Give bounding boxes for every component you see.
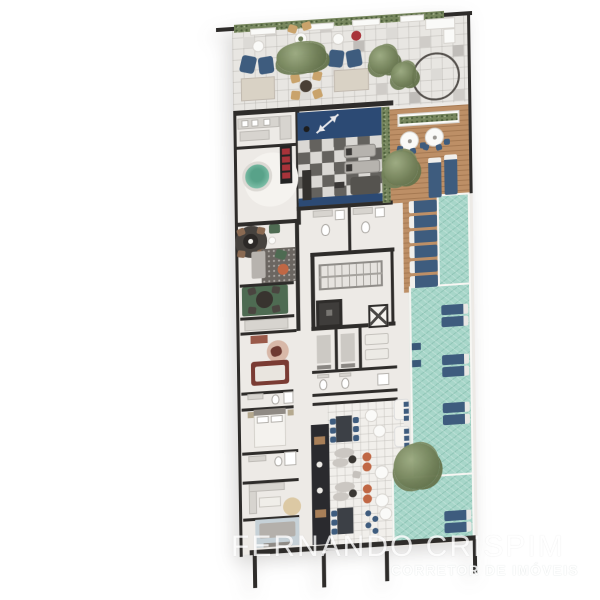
gray-sofa xyxy=(259,521,295,538)
toilet xyxy=(361,221,370,234)
toilet xyxy=(319,379,327,391)
shelf-lounger xyxy=(404,436,409,441)
pillow xyxy=(257,416,269,424)
appliance xyxy=(263,119,270,126)
lounge-chair xyxy=(331,510,337,516)
lounge-chair-blue xyxy=(327,49,345,68)
bar-board xyxy=(314,436,325,445)
dining-table xyxy=(334,68,369,92)
locker-box xyxy=(282,148,290,155)
pool-upper xyxy=(437,192,471,288)
in-pool-lounger xyxy=(444,510,471,522)
lounge-chair xyxy=(330,418,336,424)
changing-mat xyxy=(317,335,331,364)
sun-lounger xyxy=(409,230,437,244)
bar-board xyxy=(315,509,326,518)
support-sink-counter xyxy=(240,130,270,142)
lounge-table-dark xyxy=(337,507,353,534)
changing-mat xyxy=(341,333,355,362)
locker-box xyxy=(282,172,290,179)
structural-post xyxy=(322,553,326,587)
in-pool-lounger xyxy=(441,304,468,316)
wicker-chair xyxy=(291,91,301,101)
lounge-chair xyxy=(330,427,336,433)
floor-tile xyxy=(386,27,397,39)
corner-bench xyxy=(443,28,455,44)
floor-tile xyxy=(453,89,464,101)
shelf-lounger xyxy=(404,416,409,421)
toilet xyxy=(271,394,279,405)
structural-post xyxy=(253,554,257,588)
in-pool-lounger xyxy=(443,414,470,426)
sun-lounger xyxy=(410,275,438,289)
in-pool-lounger xyxy=(444,522,471,534)
gray-chair xyxy=(352,470,361,478)
locker-box xyxy=(282,156,290,163)
shower xyxy=(375,207,385,218)
bath-divider-wall xyxy=(348,207,352,250)
sun-lounger xyxy=(409,200,437,214)
bath-vanity xyxy=(313,209,333,217)
service-elevator xyxy=(368,304,388,328)
deck-chair xyxy=(444,139,450,145)
sofa-cushions xyxy=(255,365,285,382)
shelf-lounger xyxy=(404,402,409,407)
treadmill-console xyxy=(346,164,352,171)
floor-plan-canvas: FERNANDO CRISPIM CORRETOR DE IMÓVEIS xyxy=(0,0,600,600)
shower xyxy=(283,391,293,404)
dining-table xyxy=(241,76,275,101)
shelf-lounger xyxy=(404,429,409,434)
support-counter-side xyxy=(279,115,291,140)
shower xyxy=(335,210,345,221)
floor-tile xyxy=(419,36,430,48)
lounge-chair-blue xyxy=(258,56,275,75)
pool-step xyxy=(412,343,421,351)
gym-bench xyxy=(334,182,344,189)
structural-post xyxy=(385,551,389,581)
lounge-chair xyxy=(353,435,359,441)
shower xyxy=(377,373,389,386)
sun-lounger xyxy=(410,260,438,274)
lounge-chair xyxy=(353,426,359,432)
locker-box xyxy=(282,164,290,171)
shower xyxy=(284,451,296,466)
changing-wall-a xyxy=(335,329,339,369)
lounge-chair-blue xyxy=(345,49,362,69)
in-pool-lounger xyxy=(442,366,469,378)
green-armchair xyxy=(269,224,280,234)
lounge-chair xyxy=(331,528,337,534)
sun-lounger xyxy=(409,245,437,259)
bath-vanity xyxy=(248,455,266,462)
lounge-chair xyxy=(330,436,336,442)
sideboard xyxy=(251,335,268,344)
dining-chair xyxy=(237,250,246,258)
toilet xyxy=(341,378,349,390)
appliance xyxy=(251,119,258,126)
pool-step xyxy=(412,360,421,368)
kitchen-island xyxy=(259,496,281,507)
in-pool-lounger xyxy=(443,402,470,414)
in-pool-lounger xyxy=(442,354,469,366)
nightstand xyxy=(248,412,254,418)
gray-sofa xyxy=(251,251,265,279)
lounge-table-dark xyxy=(336,415,352,442)
appliance xyxy=(241,120,248,127)
wc-sink xyxy=(339,372,351,377)
toilet xyxy=(274,456,282,467)
changing-wall-b xyxy=(359,328,363,368)
massage-bed xyxy=(365,348,389,361)
lounge-chair xyxy=(331,519,337,525)
elevator-cab xyxy=(326,310,332,316)
massage-bed xyxy=(365,333,389,346)
toilet xyxy=(321,224,330,237)
structural-post xyxy=(473,539,477,573)
floor-tile xyxy=(452,45,463,57)
nightstand xyxy=(288,409,294,415)
treadmill-console xyxy=(346,148,352,155)
wc-sink xyxy=(317,374,329,379)
sun-lounger xyxy=(409,215,437,229)
pillow xyxy=(271,415,283,423)
bath-vanity xyxy=(353,207,373,215)
floor-plan xyxy=(232,11,478,575)
floor-tile xyxy=(376,83,387,95)
gym-machine xyxy=(350,175,380,195)
game-chair xyxy=(271,286,280,294)
dumbbell-rack xyxy=(302,170,311,201)
shelf-lounger xyxy=(404,409,409,414)
bath-vanity xyxy=(247,393,263,400)
lounge-chair xyxy=(353,417,359,423)
game-chair xyxy=(248,307,257,315)
sun-lounger xyxy=(428,157,442,198)
sun-lounger xyxy=(444,154,458,195)
in-pool-lounger xyxy=(441,316,468,328)
watermark-subtitle: CORRETOR DE IMÓVEIS xyxy=(391,563,579,578)
